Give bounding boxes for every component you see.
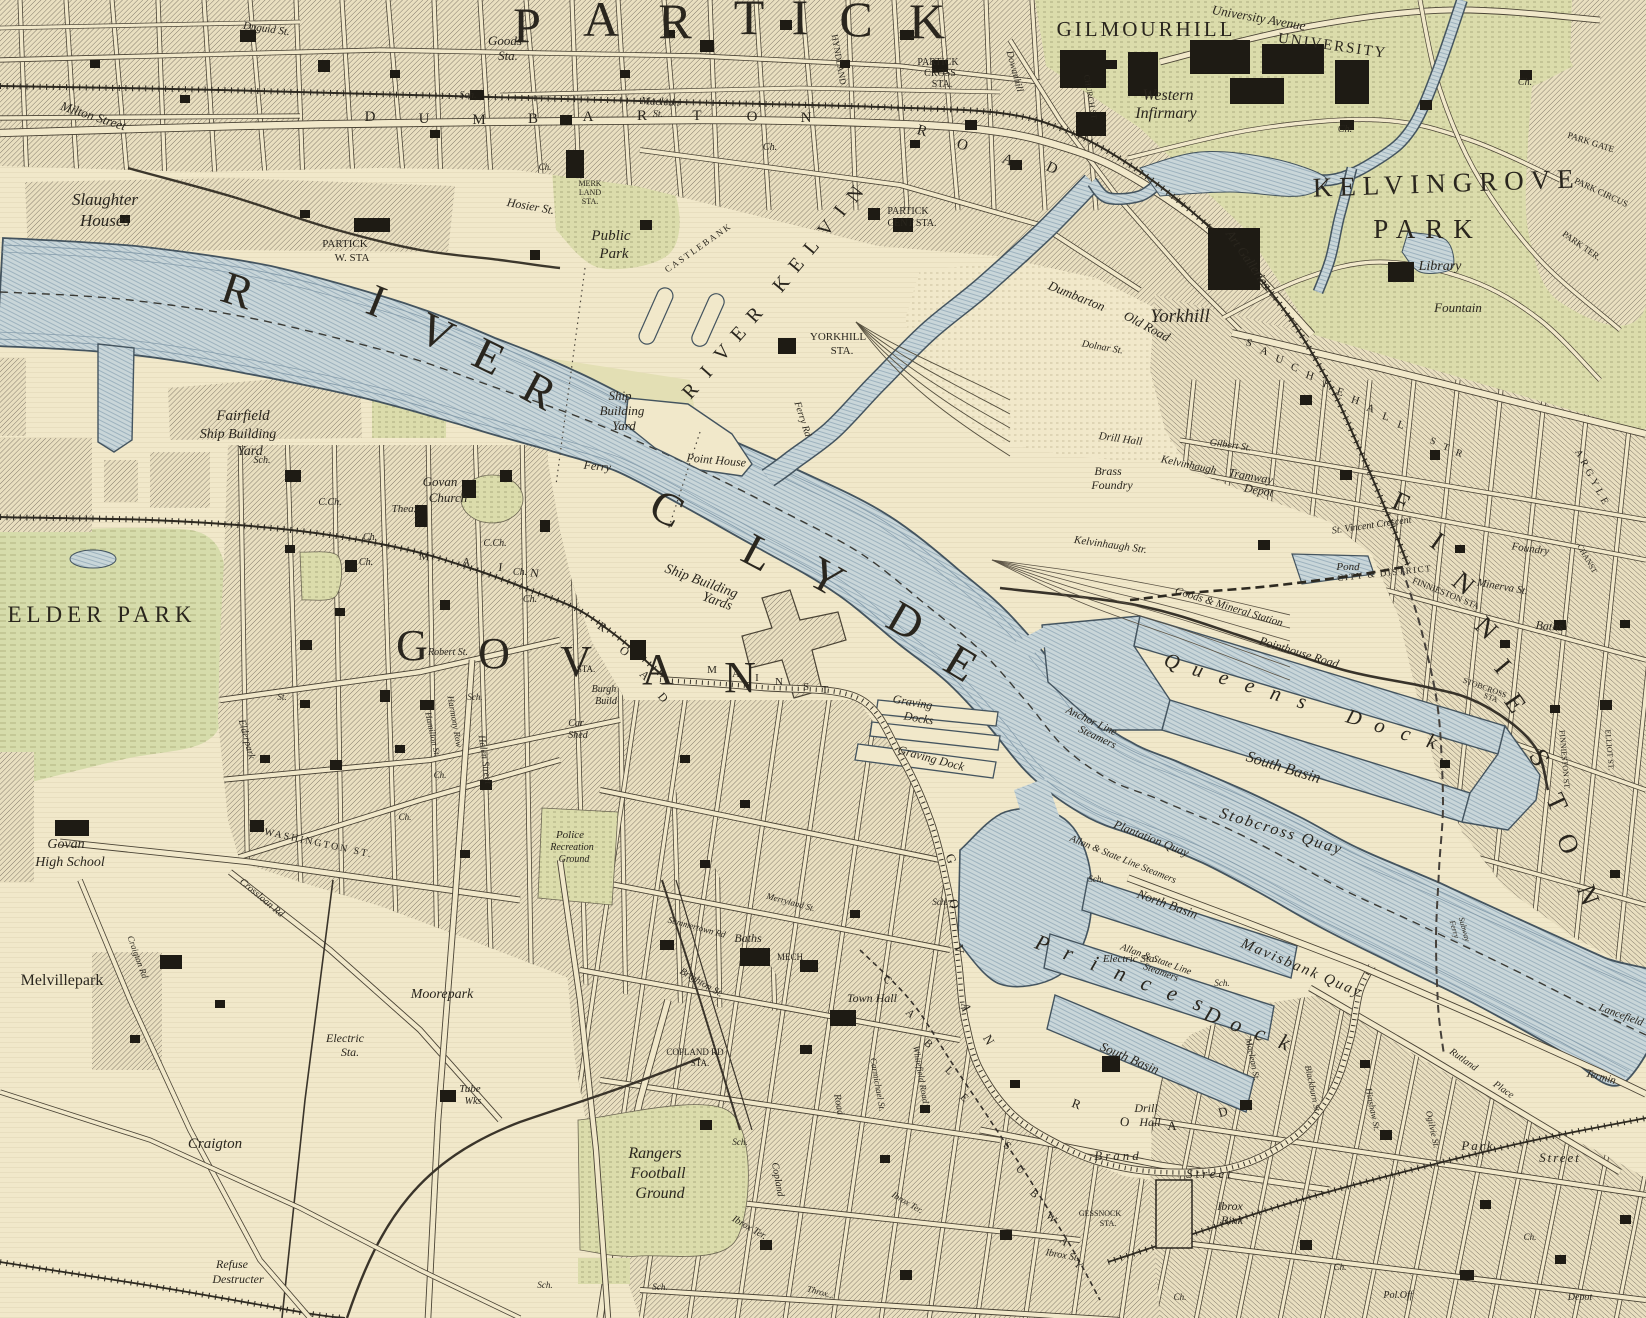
svg-text:Slaughter: Slaughter [72,190,138,209]
svg-text:A: A [732,668,740,680]
svg-text:Electric Sta.: Electric Sta. [1102,953,1157,965]
svg-text:Govan: Govan [423,474,458,489]
svg-text:STA.: STA. [691,1058,710,1068]
svg-text:CROSS: CROSS [924,68,956,79]
svg-text:Ch.: Ch. [363,532,377,543]
svg-text:Refuse: Refuse [215,1257,249,1271]
svg-text:Street: Street [1539,1150,1581,1165]
svg-text:Rink: Rink [1220,1213,1244,1227]
svg-text:Tube: Tube [459,1083,481,1095]
svg-text:A: A [1167,1118,1177,1133]
svg-text:Library: Library [1418,259,1463,274]
svg-text:Ch.: Ch. [1518,77,1532,88]
svg-text:Street: Street [1186,1166,1234,1181]
svg-text:Ship: Ship [608,388,632,403]
svg-text:Building: Building [600,403,645,418]
svg-text:LAND: LAND [579,188,601,197]
svg-text:A: A [583,0,619,47]
svg-text:Govan: Govan [47,837,84,852]
svg-text:Ch.: Ch. [434,770,447,780]
svg-text:Shed: Shed [568,730,588,741]
svg-text:Pol.Off: Pol.Off [1382,1290,1413,1301]
svg-text:Yard: Yard [612,418,636,433]
svg-text:Sta.: Sta. [498,48,518,63]
svg-text:Depot: Depot [1567,1292,1593,1303]
svg-text:Ch.: Ch. [523,594,537,605]
svg-text:MERK: MERK [578,179,601,188]
svg-text:STA.: STA. [831,345,854,357]
svg-text:Burgh: Burgh [592,684,617,695]
svg-text:St.: St. [653,109,663,120]
svg-text:Rangers: Rangers [627,1145,681,1162]
svg-text:St.: St. [277,692,286,702]
svg-text:Craigton: Craigton [188,1136,242,1152]
svg-text:Church: Church [429,490,468,505]
svg-text:A: A [583,109,594,125]
svg-text:I: I [755,672,759,684]
svg-text:Goods: Goods [488,33,522,48]
svg-text:Thea.: Thea. [392,503,417,515]
svg-text:High School: High School [34,855,105,870]
svg-text:STA.: STA. [932,79,953,90]
svg-text:CENT STA.: CENT STA. [887,218,936,229]
svg-text:S: S [803,681,809,693]
svg-text:Ch.: Ch. [1338,124,1352,135]
svg-text:GESSNOCK: GESSNOCK [1079,1209,1121,1218]
svg-text:Baths: Baths [1535,618,1564,634]
svg-text:PARTICK: PARTICK [322,238,367,250]
svg-text:M: M [707,664,717,676]
svg-text:T: T [822,684,829,696]
svg-text:Ch.: Ch. [399,812,412,822]
svg-text:R: R [658,0,692,49]
svg-text:Infirmary: Infirmary [1134,105,1197,122]
svg-text:Brass: Brass [1094,464,1122,478]
svg-text:STA.: STA. [582,197,598,206]
svg-text:C.Ch.: C.Ch. [318,497,341,508]
svg-text:YORKHILL: YORKHILL [810,331,866,343]
svg-text:I: I [792,0,809,45]
svg-text:COPLAND RD: COPLAND RD [666,1047,724,1057]
svg-text:Public: Public [590,228,630,244]
svg-text:Sch.: Sch. [932,897,947,907]
svg-text:R: R [637,108,647,124]
svg-text:PARTICK: PARTICK [887,206,929,217]
svg-text:Ch.: Ch. [513,567,527,578]
svg-text:MECH: MECH [777,952,804,962]
svg-text:O: O [747,109,758,125]
svg-text:STA.: STA. [577,664,596,674]
svg-text:Ibrox: Ibrox [1216,1199,1243,1213]
svg-text:N: N [801,110,812,126]
svg-text:Sch.: Sch. [460,90,477,101]
svg-text:STA.: STA. [1100,1219,1116,1228]
svg-text:M: M [418,549,430,564]
svg-text:Ch.: Ch. [1174,1292,1187,1302]
svg-text:T: T [734,0,765,45]
svg-text:Ferry: Ferry [582,458,612,474]
svg-text:W. STA: W. STA [335,252,370,264]
svg-text:Recreation: Recreation [549,842,594,853]
svg-text:B: B [528,111,538,127]
svg-text:O: O [478,629,510,678]
svg-text:N: N [775,676,783,688]
svg-text:Sch.: Sch. [467,692,482,702]
svg-text:Sch.: Sch. [732,1137,747,1147]
svg-text:Electric: Electric [325,1031,365,1045]
svg-text:A: A [461,555,471,570]
svg-text:Sta.: Sta. [341,1045,359,1059]
svg-text:Sch.: Sch. [652,1282,667,1292]
svg-text:Destructer: Destructer [211,1272,264,1286]
svg-text:Sch.: Sch. [1088,874,1103,884]
svg-text:Ground: Ground [559,854,591,865]
svg-text:U: U [419,111,430,127]
svg-text:PARTICK: PARTICK [917,57,959,68]
svg-text:Ch.: Ch. [1524,1232,1537,1242]
svg-text:Town Hall: Town Hall [847,991,898,1005]
svg-text:PARK: PARK [1373,214,1483,244]
svg-text:Baths: Baths [734,931,762,945]
svg-text:V: V [560,637,592,686]
svg-text:D: D [365,109,376,125]
svg-text:Ch.: Ch. [539,162,552,172]
svg-text:G: G [396,621,428,670]
svg-text:Foundry: Foundry [1090,478,1133,492]
svg-text:Park: Park [1460,1138,1494,1153]
svg-text:Fairfield: Fairfield [215,408,270,424]
svg-text:C.Ch.: C.Ch. [483,538,506,549]
svg-text:Maclean: Maclean [640,95,681,109]
svg-text:Robert St.: Robert St. [427,647,468,658]
svg-text:Fountain: Fountain [1433,300,1482,315]
svg-text:Ship Building: Ship Building [200,427,277,442]
svg-text:Ch.: Ch. [763,142,777,153]
svg-text:GILMOURHILL: GILMOURHILL [1057,17,1236,41]
svg-text:Drill: Drill [1133,1101,1158,1115]
svg-text:Ground: Ground [635,1185,685,1202]
svg-text:N: N [724,653,756,702]
svg-text:ELDER PARK: ELDER PARK [7,602,196,627]
svg-text:Sch.: Sch. [1214,978,1229,988]
svg-text:Melvillepark: Melvillepark [21,972,104,989]
svg-text:C: C [839,0,872,47]
svg-text:Yard: Yard [237,444,263,459]
svg-text:Wks: Wks [465,1096,482,1107]
svg-text:Police: Police [555,829,584,841]
svg-text:Park: Park [598,246,629,262]
svg-text:K: K [909,0,945,49]
svg-text:Hall: Hall [1138,1115,1161,1129]
svg-text:T: T [692,108,701,124]
svg-text:Sch.: Sch. [537,1280,552,1290]
svg-text:Car: Car [568,718,584,729]
svg-text:Ch.: Ch. [1334,1262,1347,1272]
svg-text:Football: Football [629,1165,686,1182]
svg-text:Western: Western [1143,87,1194,104]
svg-text:Build: Build [595,696,618,707]
svg-text:M: M [472,112,485,128]
svg-text:Moorepark: Moorepark [410,987,474,1002]
svg-text:Brand: Brand [1094,1148,1142,1163]
svg-text:Houses: Houses [79,211,130,230]
svg-text:Ch.: Ch. [359,557,373,568]
